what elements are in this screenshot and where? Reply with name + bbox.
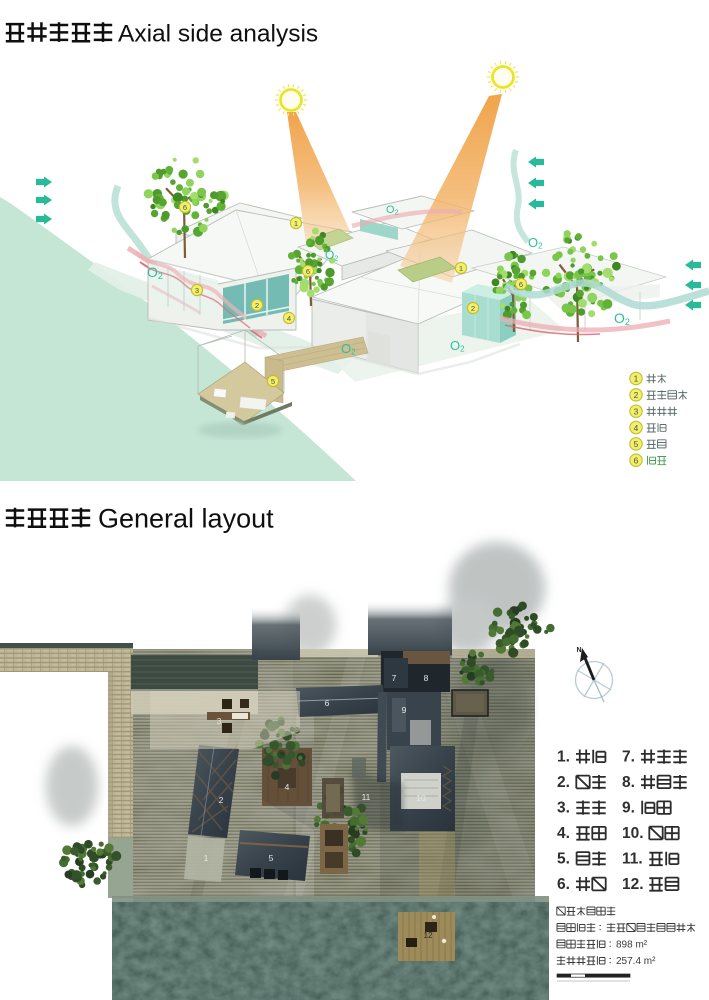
svg-text:7: 7 (392, 673, 397, 683)
svg-text:8.: 8. (622, 774, 635, 791)
svg-text:1: 1 (459, 264, 463, 273)
svg-text:1: 1 (294, 219, 298, 228)
svg-text:9.: 9. (622, 800, 635, 817)
svg-text:2: 2 (219, 795, 224, 805)
svg-text:9: 9 (402, 705, 407, 715)
svg-text:1.: 1. (557, 749, 570, 766)
svg-text:11.: 11. (622, 851, 643, 868)
svg-text:5: 5 (269, 853, 274, 863)
svg-text:5.: 5. (557, 851, 570, 868)
svg-text:4: 4 (285, 782, 290, 792)
svg-text:6: 6 (634, 455, 639, 465)
svg-text:2.: 2. (557, 774, 570, 791)
svg-text:5: 5 (271, 377, 275, 386)
svg-text:12: 12 (424, 931, 433, 940)
svg-text:2: 2 (255, 301, 259, 310)
svg-text:4: 4 (287, 314, 291, 323)
svg-text:6: 6 (306, 267, 310, 276)
svg-text:3.: 3. (557, 800, 570, 817)
svg-text:1: 1 (204, 853, 209, 863)
svg-text:3: 3 (634, 406, 639, 416)
svg-text:1: 1 (634, 374, 639, 384)
svg-text:7.: 7. (622, 749, 635, 766)
svg-text:N: N (576, 647, 581, 654)
svg-text:12.: 12. (622, 876, 644, 893)
svg-text:8: 8 (424, 673, 429, 683)
svg-text:6.: 6. (557, 876, 570, 893)
svg-text:6: 6 (325, 698, 330, 708)
svg-text:2: 2 (471, 304, 475, 313)
svg-text:10: 10 (416, 793, 426, 803)
svg-text:11: 11 (362, 792, 371, 802)
svg-text:898 m²: 898 m² (616, 940, 648, 951)
svg-text:4: 4 (634, 423, 639, 433)
svg-text:2: 2 (634, 390, 639, 400)
svg-text:6: 6 (183, 203, 187, 212)
svg-text:6: 6 (519, 280, 523, 289)
svg-text:General layout: General layout (98, 504, 274, 534)
svg-text:3: 3 (195, 286, 199, 295)
svg-text:4.: 4. (557, 825, 570, 842)
svg-text:10.: 10. (622, 825, 644, 842)
svg-text:257.4 m²: 257.4 m² (616, 956, 656, 967)
svg-text:Axial side analysis: Axial side analysis (118, 21, 318, 48)
svg-text:3: 3 (217, 716, 222, 726)
svg-text:5: 5 (634, 439, 639, 449)
